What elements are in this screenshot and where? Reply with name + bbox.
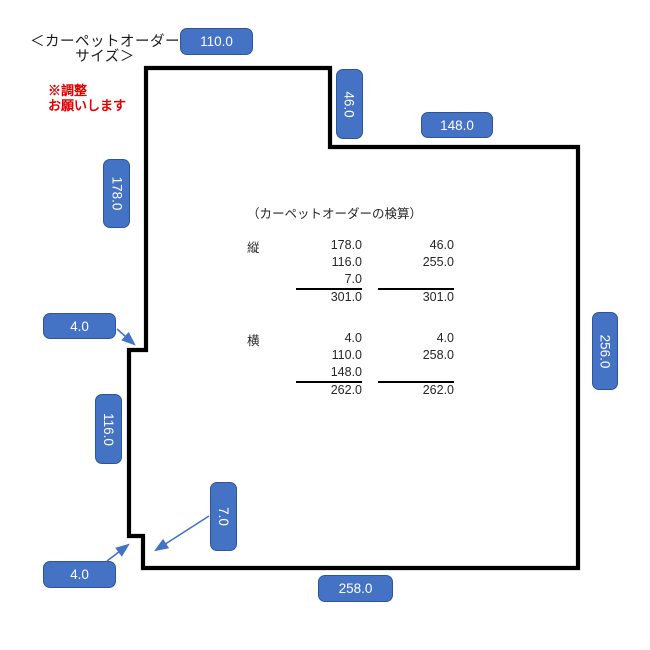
vertical-sum-col2: 46.0 255.0 301.0 [378,237,454,307]
verification-table: （カーペットオーダーの検算） 縦 178.0 116.0 7.0 301.0 4… [247,203,454,400]
dim-badge-top-right-width: 148.0 [421,112,493,138]
dim-badge-right-height: 256.0 [592,312,618,390]
adjustment-note: ※調整 お願いします [48,84,168,113]
dim-badge-top-notch-height: 46.0 [336,69,363,139]
vertical-sum-block: 縦 178.0 116.0 7.0 301.0 46.0 255.0 301.0 [247,237,454,307]
horizontal-sum-label: 横 [247,330,296,400]
verification-heading: （カーペットオーダーの検算） [247,203,454,222]
dim-badge-left-upper-step: 4.0 [43,313,116,339]
adjustment-note-line2: お願いします [48,99,168,114]
page-title-line2: サイズ＞ [30,50,180,65]
dim-badge-left-lower-step: 4.0 [43,561,116,588]
page-title-line1: ＜カーペットオーダー [30,35,180,50]
arrow-lower-step-icon [107,545,128,561]
adjustment-note-line1: ※調整 [48,84,168,99]
vertical-sum-label: 縦 [247,237,296,307]
vertical-sum-col1: 178.0 116.0 7.0 301.0 [296,237,362,307]
horizontal-sum-block: 横 4.0 110.0 148.0 262.0 4.0 258.0 262.0 [247,330,454,400]
dim-badge-bottom-width: 258.0 [318,575,393,602]
horizontal-sum-col2: 4.0 258.0 262.0 [378,330,454,400]
dim-badge-left-mid-height: 116.0 [95,394,122,464]
horizontal-sum-col1-total: 262.0 [296,381,362,400]
dim-badge-top-left-width: 110.0 [180,28,253,55]
carpet-order-diagram: ＜カーペットオーダー サイズ＞ ※調整 お願いします 110.0 46.0 14… [0,0,650,650]
arrow-upper-step-icon [117,329,134,344]
dim-badge-bottom-left-height: 7.0 [210,482,237,551]
page-title: ＜カーペットオーダー サイズ＞ [30,35,180,65]
vertical-sum-col2-total: 301.0 [378,288,454,307]
horizontal-sum-col2-total: 262.0 [378,381,454,400]
dim-badge-left-upper-height: 178.0 [103,159,130,228]
vertical-sum-col1-total: 301.0 [296,288,362,307]
horizontal-sum-col1: 4.0 110.0 148.0 262.0 [296,330,362,400]
arrow-bottom-height-icon [156,516,209,550]
